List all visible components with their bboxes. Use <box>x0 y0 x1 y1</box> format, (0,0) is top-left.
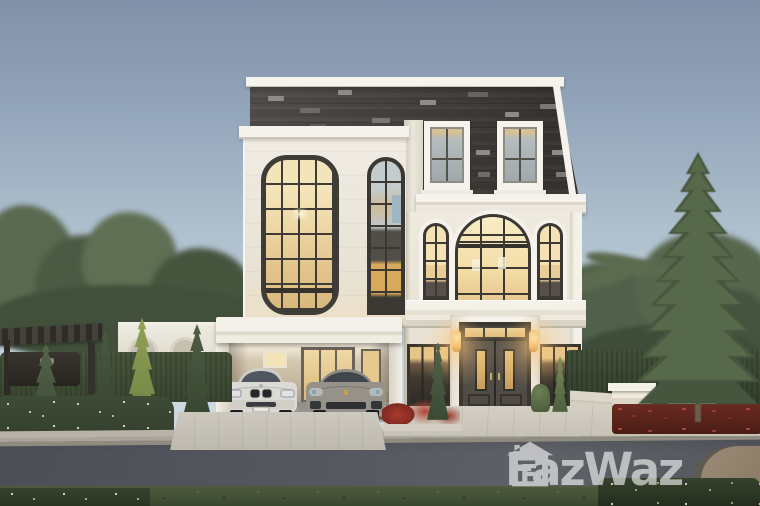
scene: FazWaz <box>0 0 760 506</box>
interior-picture-frame <box>472 259 480 271</box>
roof-cornice <box>416 194 586 214</box>
pergola-post <box>88 342 95 394</box>
interior-picture-frame <box>498 257 506 269</box>
carport-beam <box>216 317 402 343</box>
roof-shingle-accent <box>478 172 490 177</box>
door-handle <box>490 373 492 380</box>
door-leaf-split <box>494 341 496 409</box>
arched-window-2f-left <box>423 223 449 300</box>
roof-ridge-trim <box>246 77 564 87</box>
planter-kerb <box>382 424 462 431</box>
dormer-glass <box>503 127 537 183</box>
double-height-window <box>261 155 339 315</box>
roof-shingle-accent <box>300 108 320 113</box>
door-lower-panel <box>468 394 490 406</box>
left-wing-cornice <box>239 126 409 139</box>
arched-window-2f-center <box>455 214 531 307</box>
roof-shingle-accent <box>468 92 488 97</box>
driveway-apron <box>170 412 386 450</box>
dormer-window-left <box>424 121 470 197</box>
roof-shingle-accent <box>420 100 436 105</box>
roof-shingle-accent <box>372 118 390 123</box>
roof-shingle-accent <box>268 96 284 101</box>
transom-window <box>463 326 527 339</box>
wall-sconce-lamp <box>452 330 461 352</box>
pine-tree <box>628 148 760 430</box>
door-handle <box>498 373 500 380</box>
roof-shingle-accent <box>476 150 490 155</box>
window-sky-reflection <box>392 195 401 223</box>
arched-window-2f-right <box>537 223 563 300</box>
stairwell-window <box>367 157 405 315</box>
entrance-bush <box>531 384 550 412</box>
roof-shingle-accent <box>338 90 352 95</box>
door-glass-panel <box>475 349 487 391</box>
watermark-brand-text: FazWaz <box>505 449 682 490</box>
ground-window-left-of-door <box>407 344 451 406</box>
dormer-glass <box>430 127 464 183</box>
wall-sconce-lamp <box>529 330 538 352</box>
dormer-window-right <box>497 121 543 197</box>
door-glass-panel <box>503 349 515 391</box>
roof-shingle-accent <box>505 112 519 117</box>
watermark: FazWaz <box>505 438 760 490</box>
groundcover <box>0 488 150 506</box>
door-lower-panel <box>500 394 522 406</box>
